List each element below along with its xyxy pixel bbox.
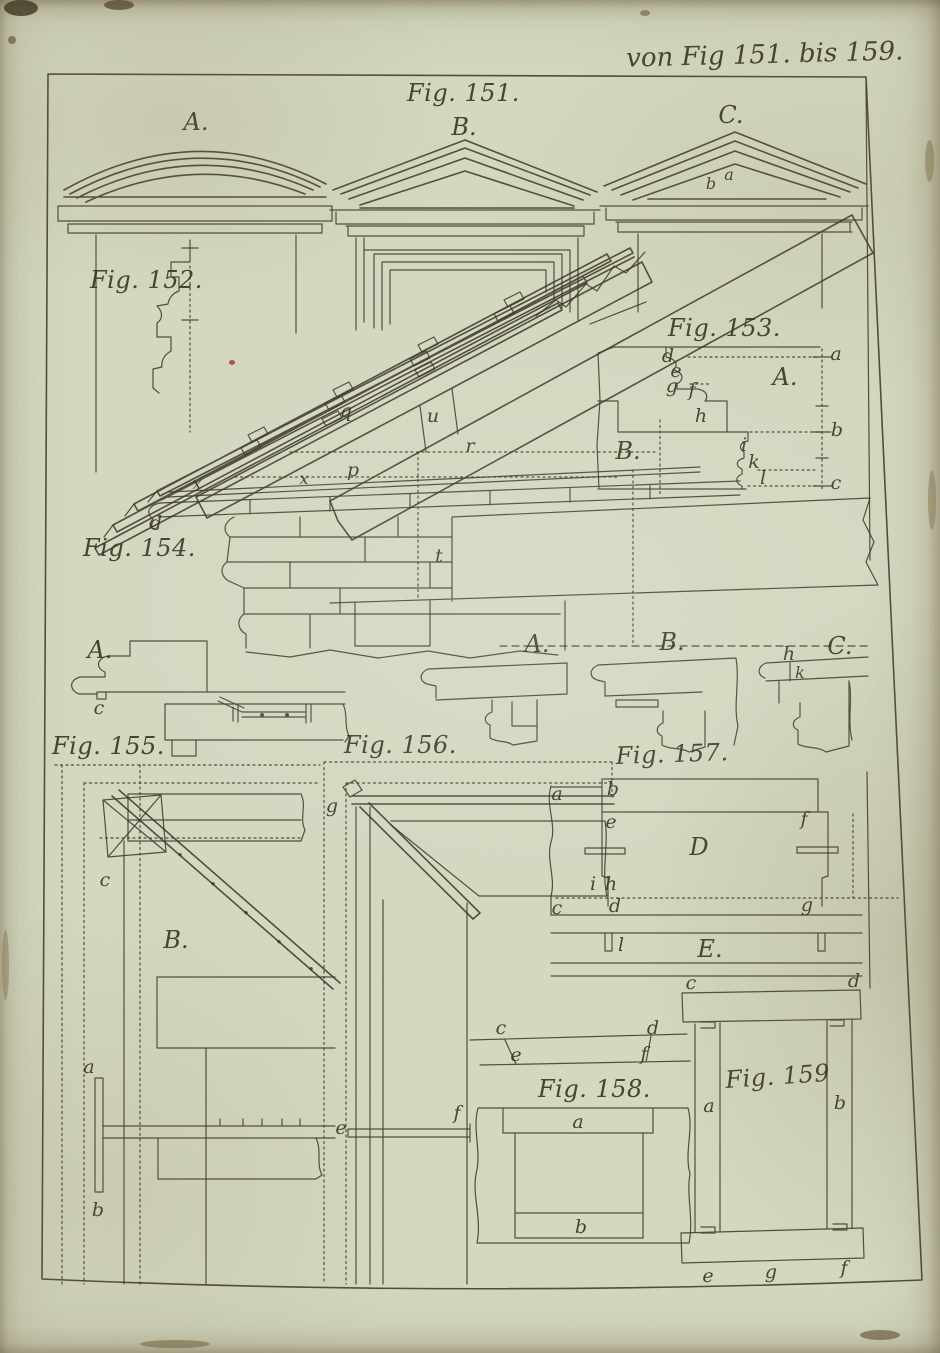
fig159-label-a: a <box>703 1095 714 1117</box>
pediment-b-raking <box>333 140 597 208</box>
plate-drawing: von Fig 151. bis 159. Fig. 151. A. B. C.… <box>0 0 940 1353</box>
fig156-panel <box>391 821 607 896</box>
fig155-rod-nuts <box>260 713 289 717</box>
fig153-label-i: i <box>741 434 747 456</box>
fig154-label-t: t <box>435 545 443 567</box>
fig156-top-beams <box>352 796 614 804</box>
fig-153: Fig. 153. d e g f h A. B. i k l a b c <box>590 302 843 494</box>
fig158-label-a: a <box>572 1111 583 1133</box>
fig153-label-B: B. <box>614 437 640 465</box>
fig153-label-a: a <box>830 343 841 365</box>
fig155-beam-middle <box>157 977 335 1048</box>
fig154-label-u: u <box>427 405 439 427</box>
fig153-label-A: A. <box>771 363 798 391</box>
fig153-label-g: g <box>666 375 678 397</box>
fig154-masonry-broken-bottom <box>246 650 558 658</box>
fig153-label-k: k <box>748 451 760 473</box>
fig154-label-d: d <box>150 512 162 534</box>
fig156-tie-beam <box>348 1124 470 1142</box>
fig151-label-B: B. <box>450 113 476 141</box>
fig154-beam-t <box>330 498 878 650</box>
fig154-mark-x1: x <box>192 474 201 493</box>
fig157-profile-c <box>759 657 868 752</box>
fig159-title: Fig. 159 <box>723 1059 830 1094</box>
fig156-label-f: f <box>451 1102 463 1124</box>
fig157-label-d: d <box>609 895 621 917</box>
pediment-b-cornice <box>330 210 600 236</box>
fig155-label-b: b <box>92 1199 104 1221</box>
fig156-title: Fig. 156. <box>343 731 457 759</box>
fig159-bottom-rail <box>681 1224 864 1263</box>
fig154-label-p: p <box>347 459 359 481</box>
fig-155: Fig. 155. A. c c B. a b <box>51 636 349 1284</box>
fig157-label-e: e <box>605 811 616 833</box>
fig156-construction-dashed <box>324 762 612 1284</box>
fig157-label-D: D <box>688 833 708 861</box>
fig155-label-c-bracket: c <box>100 869 111 891</box>
fig158-label-e: e <box>510 1044 521 1066</box>
scanned-plate-page: von Fig 151. bis 159. Fig. 151. A. B. C.… <box>0 0 940 1353</box>
fig155-tie-rod <box>218 697 311 723</box>
fig157-label-g: g <box>801 894 813 916</box>
fig157-label-A: A. <box>523 630 550 658</box>
plate-caption: von Fig 151. bis 159. <box>626 36 904 73</box>
fig153-title: Fig. 153. <box>667 314 781 342</box>
fig153-label-b: b <box>831 419 843 441</box>
fig154-masonry <box>222 517 560 648</box>
fig154-title: Fig. 154. <box>82 534 196 562</box>
fig156-posts <box>356 807 467 1284</box>
pediment-b-doorframe <box>356 238 578 330</box>
fig155-nailed-board <box>103 1119 335 1138</box>
fig156-label-e: e <box>335 1117 346 1139</box>
fig157-label-B: B. <box>658 628 684 656</box>
fig158-title: Fig. 158. <box>537 1075 651 1103</box>
fig153-label-h: h <box>695 405 707 427</box>
fig-156: Fig. 156. g e f <box>324 731 614 1284</box>
fig157-label-c: c <box>552 897 563 919</box>
fig157-label-C: C. <box>827 632 852 660</box>
fig154-label-r: r <box>465 435 476 457</box>
fig157-cross-ties <box>585 847 838 854</box>
pediment-a-cornice <box>58 206 332 233</box>
fig158-label-c: c <box>496 1017 507 1039</box>
fig159-top-rail <box>682 990 861 1028</box>
fig154-construction-dotted <box>235 420 660 645</box>
plate-fold-lines <box>866 82 870 988</box>
fig157-label-a: a <box>551 783 562 805</box>
fig156-label-g: g <box>326 795 338 817</box>
fig-159: c d Fig. 159 a b e g f <box>681 970 864 1287</box>
fig153-label-l: l <box>760 467 766 489</box>
pediment-c-raking <box>604 132 866 200</box>
fig152-title: Fig. 152. <box>89 266 203 294</box>
fig155-label-A: A. <box>86 636 113 664</box>
fig153-label-c: c <box>831 472 842 494</box>
fig151-title: Fig. 151. <box>406 79 520 107</box>
fig155-title: Fig. 155. <box>51 732 165 760</box>
fig152-profile <box>153 240 190 393</box>
fig155-posts <box>124 841 206 1284</box>
fig155-lower-panel <box>158 1138 322 1179</box>
fig151-label-b: b <box>706 174 716 193</box>
fig155-label-a: a <box>83 1056 94 1078</box>
fig154-mark-x2: x <box>299 469 308 488</box>
fig157-label-i: i <box>590 873 596 895</box>
fig159-label-b: b <box>834 1092 846 1114</box>
fig159-label-e: e <box>702 1265 713 1287</box>
fig159-label-f: f <box>838 1257 850 1279</box>
fig157-title: Fig. 157. <box>614 738 729 770</box>
fig155-label-B: B. <box>162 926 188 954</box>
fig157-label-E: E. <box>696 935 722 963</box>
fig155-vertical-bar <box>95 1078 103 1192</box>
fig-157: Fig. 157. A. B. C. h k a b e f D i h c d… <box>421 628 898 976</box>
fig157-label-b: b <box>607 778 619 800</box>
pediment-a-arcs <box>64 151 326 202</box>
fig158-label-b: b <box>575 1216 587 1238</box>
fig154-label-q: q <box>340 400 352 422</box>
fig159-posts <box>695 1020 852 1232</box>
fig157-label-h: h <box>605 873 617 895</box>
fig157-label-l: l <box>618 934 624 956</box>
fig159-label-g: g <box>765 1261 777 1283</box>
fig-152: Fig. 152. <box>89 240 203 432</box>
fig151-label-C: C. <box>718 101 743 129</box>
fig157-label-f: f <box>798 808 810 830</box>
fig-158: c d e f Fig. 158. a b <box>470 1017 691 1243</box>
fig158-label-d: d <box>647 1017 659 1039</box>
fig151-label-A: A. <box>182 108 209 136</box>
fig153-label-f: f <box>686 379 698 401</box>
fig155-label-c-section: c <box>94 697 105 719</box>
fig159-label-c: c <box>686 972 697 994</box>
fig159-label-d: d <box>848 970 860 992</box>
